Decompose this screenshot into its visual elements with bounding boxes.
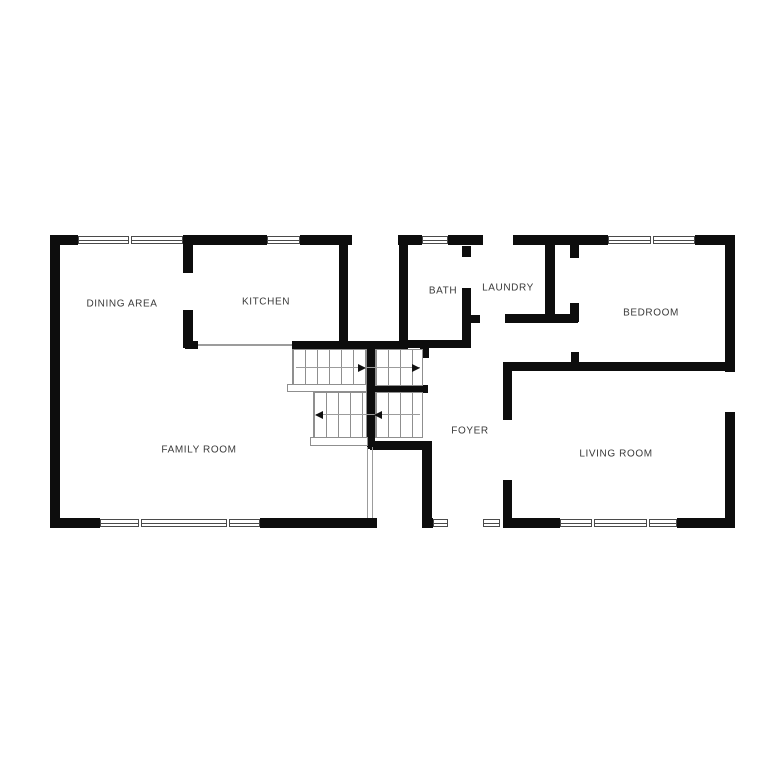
room-label-laundry: LAUNDRY xyxy=(482,283,534,294)
window xyxy=(560,519,677,527)
window-pane-line xyxy=(423,240,447,241)
window-divider xyxy=(591,519,595,527)
wall-segment xyxy=(183,235,193,273)
wall-segment xyxy=(503,480,512,528)
window xyxy=(422,236,448,244)
wall-segment xyxy=(570,303,579,322)
window-divider xyxy=(650,236,654,244)
window-pane-line xyxy=(484,523,499,524)
window-pane-line xyxy=(561,523,676,524)
wall-segment xyxy=(422,441,432,528)
wall-segment xyxy=(185,341,198,349)
window-divider xyxy=(128,236,132,244)
wall-segment xyxy=(462,246,471,257)
wall-segment xyxy=(50,235,78,245)
window-divider xyxy=(226,519,230,527)
floor-plan-canvas: DINING AREAKITCHENBATHLAUNDRYBEDROOMFAMI… xyxy=(0,0,768,768)
wall-segment xyxy=(545,242,555,317)
wall-segment xyxy=(462,315,480,323)
window-divider xyxy=(646,519,650,527)
window xyxy=(608,236,695,244)
wall-segment xyxy=(399,238,408,348)
stair-direction-arrow xyxy=(358,364,366,372)
wall-segment xyxy=(183,235,267,245)
stair-direction-arrow xyxy=(412,364,420,372)
wall-segment xyxy=(50,235,60,528)
room-label-kitchen: KITCHEN xyxy=(242,297,290,308)
wall-segment xyxy=(339,238,348,348)
window xyxy=(100,519,260,527)
stair-direction-arrow xyxy=(374,411,382,419)
wall-segment xyxy=(260,518,377,528)
wall-segment xyxy=(505,314,578,323)
wall-segment xyxy=(570,242,579,258)
stair-treads xyxy=(375,392,423,438)
window xyxy=(483,519,500,527)
guide-line xyxy=(367,447,368,518)
wall-segment xyxy=(513,235,608,245)
window-pane-line xyxy=(268,240,299,241)
room-label-family-room: FAMILY ROOM xyxy=(161,445,236,456)
window-pane-line xyxy=(434,523,447,524)
wall-segment xyxy=(50,518,100,528)
wall-segment xyxy=(503,363,512,420)
room-label-dining-area: DINING AREA xyxy=(86,299,157,310)
window xyxy=(78,236,183,244)
wall-segment xyxy=(292,341,408,349)
stair-landing-edge xyxy=(310,437,368,446)
stair-direction-arrow xyxy=(315,411,323,419)
guide-line xyxy=(316,414,420,415)
window-divider xyxy=(138,519,142,527)
wall-segment xyxy=(725,235,735,372)
room-label-living-room: LIVING ROOM xyxy=(579,449,652,460)
window-pane-line xyxy=(101,523,259,524)
room-label-bedroom: BEDROOM xyxy=(623,308,679,319)
wall-segment xyxy=(725,412,735,528)
room-label-bath: BATH xyxy=(429,286,457,297)
window xyxy=(267,236,300,244)
wall-segment xyxy=(503,362,730,371)
guide-line xyxy=(198,344,292,346)
guide-line xyxy=(372,447,373,518)
wall-segment xyxy=(677,518,735,528)
stair-landing-edge xyxy=(287,384,367,392)
wall-segment xyxy=(399,340,470,348)
window xyxy=(433,519,448,527)
wall-segment xyxy=(367,341,375,449)
room-label-foyer: FOYER xyxy=(451,426,488,437)
wall-segment xyxy=(448,235,483,245)
